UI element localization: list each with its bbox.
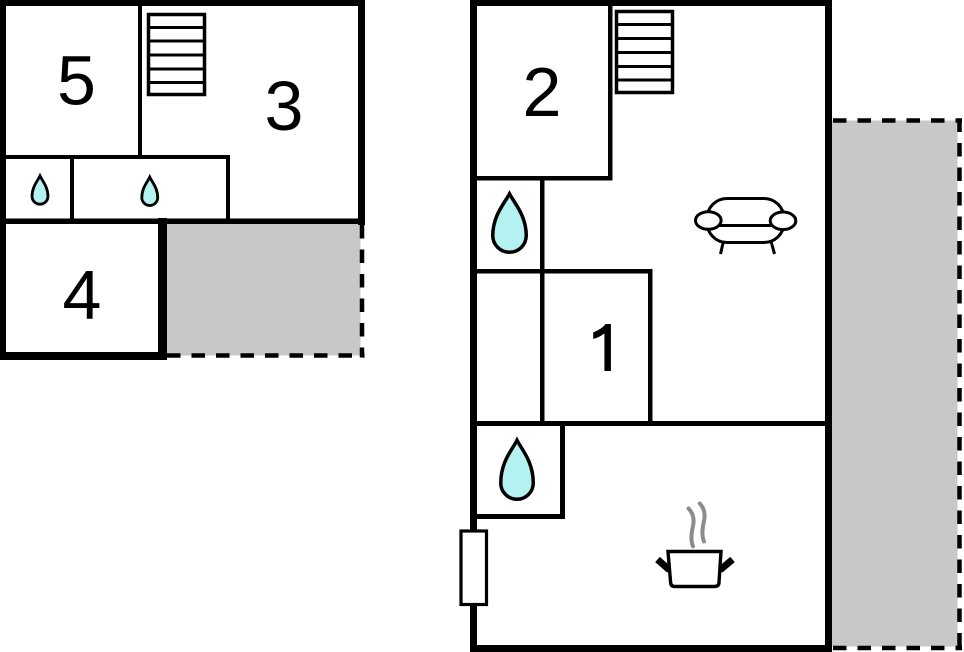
svg-text:3: 3: [265, 67, 304, 145]
svg-text:5: 5: [57, 42, 96, 120]
svg-text:4: 4: [63, 256, 102, 334]
svg-text:2: 2: [523, 53, 562, 131]
